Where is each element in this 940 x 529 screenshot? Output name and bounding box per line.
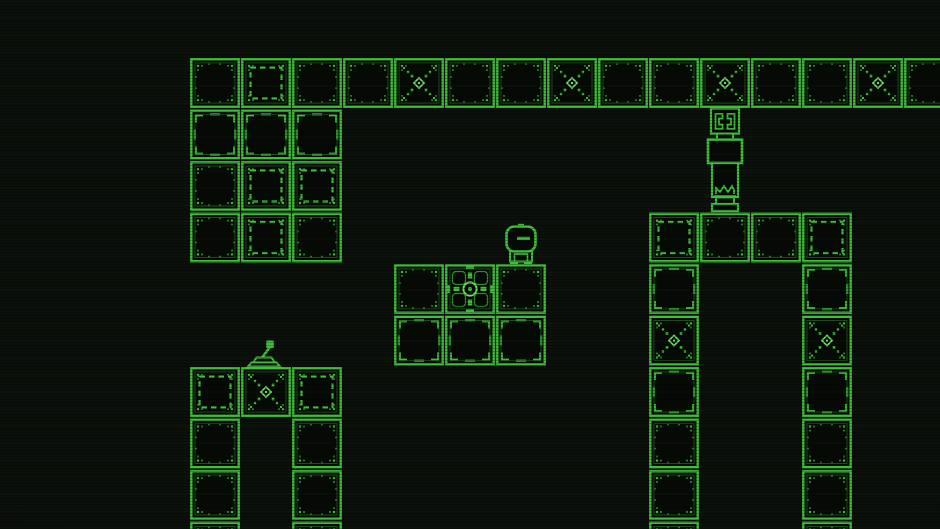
- edge-dot: [756, 76, 758, 78]
- corner-dot: [809, 253, 811, 255]
- edge-tick: [653, 284, 655, 294]
- edge-dot: [372, 101, 374, 103]
- edge-dot: [219, 166, 221, 168]
- edge-dot: [692, 76, 694, 78]
- corner-dot: [707, 95, 709, 97]
- corner-dot: [915, 99, 917, 101]
- edge-dot: [488, 87, 490, 89]
- corner-dot: [231, 250, 233, 252]
- corner-dot: [537, 65, 539, 67]
- corner-dot: [690, 511, 692, 513]
- corner-dot: [741, 219, 743, 221]
- x-dot: [578, 75, 581, 78]
- tile-plain: [803, 523, 850, 529]
- edge-dot: [831, 101, 833, 103]
- corner-dot: [384, 95, 386, 97]
- edge-dot: [603, 87, 605, 89]
- edge-tick: [296, 130, 298, 140]
- corner-dot: [690, 459, 692, 461]
- lever-knob: [266, 341, 274, 349]
- player-robot-sprite: [507, 224, 536, 264]
- corner-dot: [227, 426, 229, 428]
- tile-border: [497, 317, 544, 364]
- corner-dot: [741, 69, 743, 71]
- corner-dot: [860, 95, 862, 97]
- tile-dashed: [650, 214, 697, 261]
- corner-dot: [431, 271, 433, 273]
- corner-dot: [707, 99, 709, 101]
- x-dot: [254, 402, 256, 404]
- edge-dot: [310, 101, 312, 103]
- edge-dot: [756, 242, 758, 244]
- tile-dashed: [293, 162, 340, 209]
- tile-dashed: [191, 368, 238, 415]
- corner-dot: [839, 65, 841, 67]
- edge-dot: [372, 63, 374, 65]
- corner-dot: [741, 95, 743, 97]
- corner-dot: [843, 356, 845, 358]
- edge-dot: [412, 307, 414, 309]
- corner-dot: [435, 301, 437, 303]
- edge-dot: [909, 76, 911, 78]
- corner-dot: [533, 305, 535, 307]
- edge-dot: [922, 101, 924, 103]
- corner-dot: [894, 99, 896, 101]
- edge-dot: [780, 256, 782, 258]
- tile-plain: [293, 214, 340, 261]
- edge-dot: [603, 76, 605, 78]
- edge-dot: [729, 218, 731, 220]
- corner-dot: [656, 456, 658, 458]
- corner-dot: [660, 426, 662, 428]
- edge-dot: [208, 63, 210, 65]
- corner-dot: [843, 430, 845, 432]
- tile-plain: [446, 59, 493, 106]
- corner-dot: [329, 202, 331, 204]
- corner-dot: [197, 378, 199, 380]
- corner-dot: [452, 65, 454, 67]
- x-dot: [407, 71, 409, 73]
- game-canvas[interactable]: [0, 0, 940, 529]
- edge-dot: [219, 513, 221, 515]
- edge-dot: [335, 488, 337, 490]
- edge-tick: [210, 113, 220, 115]
- corner-dot: [813, 323, 815, 325]
- edge-tick: [234, 130, 236, 140]
- edge-dot: [820, 63, 822, 65]
- corner-dot: [503, 301, 505, 303]
- tile-x: [548, 59, 595, 106]
- edge-dot: [321, 101, 323, 103]
- corner-dot: [401, 95, 403, 97]
- tile-plain: [191, 523, 238, 529]
- edge-dot: [195, 190, 197, 192]
- x-dot: [688, 355, 690, 357]
- edge-dot: [219, 204, 221, 206]
- x-dot: [819, 346, 822, 349]
- corner-dot: [201, 460, 203, 462]
- edge-dot: [219, 218, 221, 220]
- edge-dot: [794, 76, 796, 78]
- x-dot: [276, 402, 278, 404]
- tile-plain: [497, 265, 544, 312]
- corner-dot: [299, 477, 301, 479]
- edge-tick: [414, 319, 424, 321]
- corner-dot: [350, 99, 352, 101]
- corner-dot: [690, 430, 692, 432]
- edge-dot: [616, 63, 618, 65]
- edge-dot: [678, 527, 680, 529]
- corner-dot: [843, 65, 845, 67]
- tile-plain: [293, 523, 340, 529]
- tile-plain: [650, 59, 697, 106]
- edge-dot: [321, 63, 323, 65]
- edge-dot: [195, 231, 197, 233]
- edge-dot: [794, 87, 796, 89]
- tile-plain: [599, 59, 646, 106]
- x-dot: [258, 384, 261, 387]
- edge-dot: [423, 269, 425, 271]
- edge-tick: [414, 360, 424, 362]
- tile-border: [293, 111, 340, 158]
- edge-dot: [831, 527, 833, 529]
- edge-dot: [321, 475, 323, 477]
- corner-dot: [299, 408, 301, 410]
- corner-dot: [507, 271, 509, 273]
- x-dot: [662, 350, 664, 352]
- edge-dot: [310, 424, 312, 426]
- corner-dot: [333, 507, 335, 509]
- x-dot: [739, 97, 741, 99]
- edge-tick: [489, 336, 491, 346]
- x-dot: [709, 97, 711, 99]
- tile-plain: [803, 420, 850, 467]
- x-dot: [658, 355, 660, 357]
- edge-tick: [516, 360, 526, 362]
- x-dot: [586, 67, 588, 69]
- corner-dot: [537, 301, 539, 303]
- corner-dot: [792, 219, 794, 221]
- corner-dot: [839, 426, 841, 428]
- corner-dot: [197, 430, 199, 432]
- corner-dot: [737, 220, 739, 222]
- corner-dot: [813, 511, 815, 513]
- corner-dot: [809, 456, 811, 458]
- edge-dot: [233, 76, 235, 78]
- edge-dot: [310, 475, 312, 477]
- corner-dot: [605, 95, 607, 97]
- corner-dot: [231, 253, 233, 255]
- edge-dot: [208, 218, 210, 220]
- tile-dashed: [242, 59, 289, 106]
- corner-dot: [605, 65, 607, 67]
- x-dot: [560, 93, 562, 95]
- x-center-dot: [877, 82, 879, 84]
- edge-dot: [845, 448, 847, 450]
- corner-dot: [456, 65, 458, 67]
- corner-dot: [503, 69, 505, 71]
- corner-dot: [554, 95, 556, 97]
- x-dot: [892, 97, 894, 99]
- corner-dot: [435, 271, 437, 273]
- edge-dot: [219, 527, 221, 529]
- edge-dot: [539, 282, 541, 284]
- corner-dot: [350, 95, 352, 97]
- edge-dot: [718, 256, 720, 258]
- corner-dot: [299, 378, 301, 380]
- corner-dot: [809, 481, 811, 483]
- corner-dot: [915, 65, 917, 67]
- corner-dot: [537, 99, 539, 101]
- corner-dot: [809, 99, 811, 101]
- corner-dot: [605, 69, 607, 71]
- edge-dot: [705, 231, 707, 233]
- edge-dot: [743, 231, 745, 233]
- corner-dot: [533, 271, 535, 273]
- edge-dot: [348, 76, 350, 78]
- edge-dot: [233, 488, 235, 490]
- edge-dot: [820, 513, 822, 515]
- corner-dot: [686, 511, 688, 513]
- corner-dot: [839, 99, 841, 101]
- edge-dot: [208, 513, 210, 515]
- edge-dot: [780, 101, 782, 103]
- x-dot: [425, 75, 428, 78]
- corner-dot: [554, 99, 556, 101]
- corner-dot: [660, 65, 662, 67]
- corner-dot: [843, 353, 845, 355]
- edge-tick: [398, 336, 400, 346]
- corner-dot: [839, 511, 841, 513]
- tile-x: [395, 59, 442, 106]
- corner-dot: [558, 99, 560, 101]
- corner-dot: [839, 323, 841, 325]
- x-dot: [556, 97, 558, 99]
- edge-dot: [321, 424, 323, 426]
- x-dot: [892, 67, 894, 69]
- corner-dot: [333, 65, 335, 67]
- corner-dot: [656, 425, 658, 427]
- corner-dot: [384, 69, 386, 71]
- corner-dot: [537, 271, 539, 273]
- corner-dot: [707, 65, 709, 67]
- corner-dot: [809, 477, 811, 479]
- corner-dot: [839, 477, 841, 479]
- tile-plain: [191, 420, 238, 467]
- corner-dot: [303, 220, 305, 222]
- edge-dot: [399, 293, 401, 295]
- corner-dot: [558, 65, 560, 67]
- edge-dot: [310, 218, 312, 220]
- edge-dot: [195, 448, 197, 450]
- x-center-dot: [673, 340, 675, 342]
- tile-plain: [191, 162, 238, 209]
- corner-dot: [201, 477, 203, 479]
- edge-dot: [361, 63, 363, 65]
- tile-dashed: [242, 214, 289, 261]
- corner-dot: [503, 305, 505, 307]
- x-dot: [564, 75, 567, 78]
- corner-dot: [507, 99, 509, 101]
- corner-dot: [248, 408, 250, 410]
- corner-dot: [329, 426, 331, 428]
- corner-dot: [231, 425, 233, 427]
- edge-dot: [807, 87, 809, 89]
- edge-dot: [297, 437, 299, 439]
- x-dot: [258, 398, 261, 401]
- corner-dot: [809, 322, 811, 324]
- edge-dot: [219, 101, 221, 103]
- corner-dot: [758, 99, 760, 101]
- edge-dot: [654, 87, 656, 89]
- corner-dot: [762, 220, 764, 222]
- edge-dot: [845, 76, 847, 78]
- edge-dot: [667, 101, 669, 103]
- corner-dot: [656, 65, 658, 67]
- corner-dot: [354, 65, 356, 67]
- edge-dot: [933, 63, 935, 65]
- corner-dot: [788, 65, 790, 67]
- tile-plain: [752, 59, 799, 106]
- edge-dot: [437, 293, 439, 295]
- corner-dot: [686, 323, 688, 325]
- corner-dot: [401, 65, 403, 67]
- corner-dot: [329, 460, 331, 462]
- corner-dot: [197, 481, 199, 483]
- corner-dot: [231, 65, 233, 67]
- edge-dot: [208, 424, 210, 426]
- edge-dot: [297, 488, 299, 490]
- corner-dot: [690, 356, 692, 358]
- corner-dot: [809, 69, 811, 71]
- edge-dot: [627, 101, 629, 103]
- edge-dot: [654, 76, 656, 78]
- x-dot: [888, 93, 890, 95]
- corner-dot: [660, 357, 662, 359]
- corner-dot: [605, 99, 607, 101]
- edge-dot: [233, 242, 235, 244]
- corner-dot: [435, 305, 437, 307]
- tile-border: [191, 523, 238, 529]
- corner-dot: [197, 425, 199, 427]
- edge-dot: [195, 488, 197, 490]
- corner-dot: [333, 95, 335, 97]
- corner-dot: [741, 224, 743, 226]
- edge-dot: [488, 76, 490, 78]
- edge-dot: [769, 101, 771, 103]
- corner-dot: [707, 250, 709, 252]
- corner-dot: [686, 460, 688, 462]
- x-dot: [819, 332, 822, 335]
- corner-dot: [201, 202, 203, 204]
- edge-dot: [616, 101, 618, 103]
- edge-dot: [321, 218, 323, 220]
- corner-dot: [792, 253, 794, 255]
- corner-dot: [843, 327, 845, 329]
- edge-dot: [831, 63, 833, 65]
- tile-plain: [752, 214, 799, 261]
- edge-dot: [692, 437, 694, 439]
- edge-dot: [310, 462, 312, 464]
- corner-dot: [660, 460, 662, 462]
- edge-dot: [780, 63, 782, 65]
- corner-dot: [299, 65, 301, 67]
- corner-dot: [303, 65, 305, 67]
- edge-dot: [208, 166, 210, 168]
- corner-dot: [248, 374, 250, 376]
- x-dot: [560, 71, 562, 73]
- corner-dot: [758, 69, 760, 71]
- corner-dot: [248, 378, 250, 380]
- corner-dot: [231, 198, 233, 200]
- corner-dot: [201, 254, 203, 256]
- corner-dot: [354, 99, 356, 101]
- tile-border: [446, 317, 493, 364]
- edge-dot: [361, 101, 363, 103]
- corner-dot: [401, 301, 403, 303]
- edge-dot: [525, 101, 527, 103]
- edge-dot: [845, 437, 847, 439]
- tile-plain: [650, 420, 697, 467]
- edge-dot: [667, 63, 669, 65]
- x-dot: [280, 376, 282, 378]
- edge-tick: [261, 113, 271, 115]
- corner-dot: [333, 219, 335, 221]
- corner-dot: [843, 481, 845, 483]
- edge-dot: [667, 424, 669, 426]
- corner-dot: [333, 425, 335, 427]
- edge-dot: [219, 256, 221, 258]
- corner-dot: [401, 305, 403, 307]
- edge-dot: [297, 242, 299, 244]
- corner-dot: [201, 168, 203, 170]
- corner-dot: [890, 65, 892, 67]
- edge-dot: [233, 87, 235, 89]
- tile-border: [650, 265, 697, 312]
- corner-dot: [248, 99, 250, 101]
- x-center-dot: [571, 82, 573, 84]
- tile-plain2: [293, 111, 340, 158]
- corner-dot: [813, 460, 815, 462]
- corner-dot: [690, 99, 692, 101]
- corner-dot: [894, 69, 896, 71]
- tile-border: [650, 368, 697, 415]
- corner-dot: [690, 322, 692, 324]
- corner-dot: [894, 65, 896, 67]
- corner-dot: [690, 425, 692, 427]
- corner-dot: [333, 99, 335, 101]
- corner-dot: [809, 65, 811, 67]
- edge-dot: [769, 218, 771, 220]
- edge-dot: [335, 242, 337, 244]
- corner-dot: [248, 253, 250, 255]
- edge-dot: [501, 76, 503, 78]
- corner-dot: [197, 65, 199, 67]
- x-dot: [582, 93, 584, 95]
- x-dot: [713, 93, 715, 95]
- corner-dot: [843, 477, 845, 479]
- x-dot: [280, 406, 282, 408]
- edge-dot: [807, 499, 809, 501]
- corner-dot: [554, 69, 556, 71]
- x-dot: [870, 75, 873, 78]
- corner-dot: [486, 95, 488, 97]
- tile-plain2: [650, 265, 697, 312]
- x-center-dot: [418, 82, 420, 84]
- x-center-dot: [265, 391, 267, 393]
- edge-dot: [807, 448, 809, 450]
- edge-dot: [321, 256, 323, 258]
